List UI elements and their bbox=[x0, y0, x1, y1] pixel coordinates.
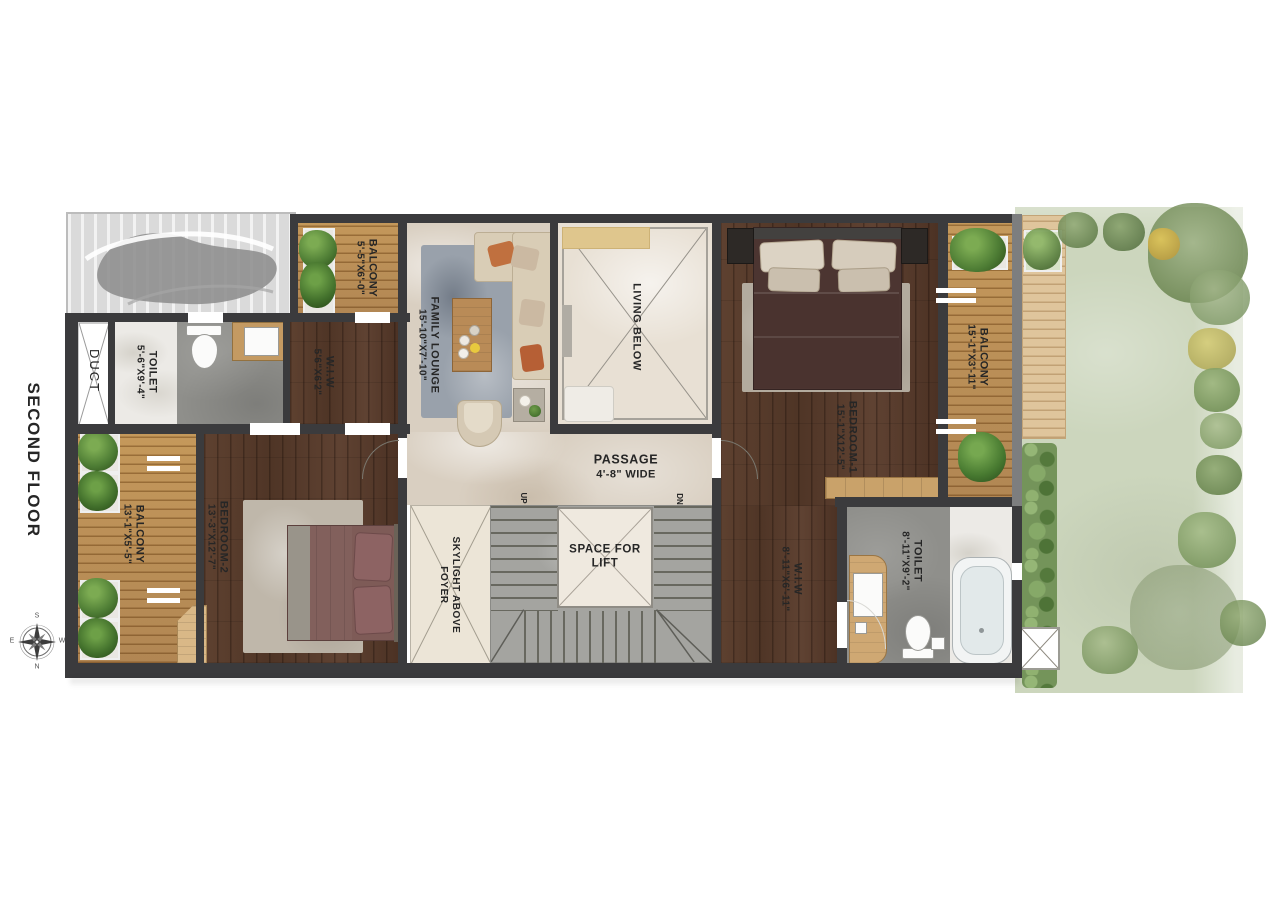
label-balcony-right: BALCONY 15'-1"X3'-11" bbox=[964, 324, 989, 390]
nightstand bbox=[727, 228, 754, 264]
bed2-pillow bbox=[353, 532, 393, 582]
toilet2-basin-icon bbox=[244, 327, 279, 356]
bush bbox=[1200, 413, 1242, 449]
label-toilet2: TOILET 5'-6"X9'-4" bbox=[133, 345, 158, 399]
bed2-pillow bbox=[353, 585, 393, 635]
bed1-blanket bbox=[754, 292, 899, 388]
wall bbox=[837, 507, 847, 602]
tree bbox=[1190, 270, 1250, 325]
planter-plant bbox=[958, 432, 1006, 482]
bed2-blanket bbox=[288, 526, 352, 640]
door-opening bbox=[398, 438, 407, 478]
bush bbox=[1082, 626, 1138, 674]
wall bbox=[1012, 506, 1022, 678]
label-balcony-left: BALCONY 13'-1"X5'-5" bbox=[120, 504, 145, 564]
planter-plant bbox=[78, 618, 118, 658]
label-passage: PASSAGE 4'-8" WIDE bbox=[594, 452, 658, 481]
garden-skylight bbox=[1020, 627, 1060, 670]
wall bbox=[65, 313, 78, 678]
planter-plant bbox=[78, 578, 118, 618]
planter-plant bbox=[950, 228, 1006, 272]
console-below bbox=[562, 305, 572, 357]
floor-plan: SECOND FLOOR DUCT TOILET 5'-6"X9'-4" BAL… bbox=[0, 0, 1285, 900]
bathtub bbox=[952, 557, 1012, 664]
label-living-below: LIVING BELOW bbox=[629, 283, 642, 371]
wall bbox=[1012, 214, 1022, 506]
toilet1-accessory bbox=[931, 637, 945, 650]
label-bedroom1: BEDROOM-1 15'-1"X12'-5" bbox=[833, 401, 858, 474]
label-duct: DUCT bbox=[86, 349, 102, 393]
wall bbox=[283, 313, 290, 434]
room-wiw2 bbox=[290, 322, 398, 424]
toilet2-vanity bbox=[232, 322, 285, 361]
label-wiw1: W.I.W 8'-11"X6'-11" bbox=[778, 546, 803, 611]
label-lift: SPACE FOR LIFT bbox=[569, 543, 641, 572]
door-opening bbox=[250, 423, 300, 435]
sofa-cushion bbox=[518, 298, 545, 327]
room-passage bbox=[406, 432, 712, 505]
sliding-door-icon bbox=[936, 288, 976, 303]
bush bbox=[1194, 368, 1240, 412]
bed1-pillow bbox=[768, 267, 821, 293]
side-table bbox=[513, 388, 545, 422]
sliding-door-icon bbox=[147, 588, 180, 603]
sliding-door-icon bbox=[147, 456, 180, 471]
compass-east: E bbox=[10, 638, 15, 647]
pergola-canopy bbox=[66, 212, 296, 320]
canopy-shape-icon bbox=[68, 214, 294, 318]
building-shadow bbox=[70, 678, 1020, 687]
bush bbox=[1196, 455, 1242, 495]
door-opening bbox=[355, 312, 390, 323]
wall bbox=[290, 214, 298, 317]
sofa-below bbox=[564, 386, 614, 422]
label-bedroom2: BEDROOM-2 13'-3"X12'-7" bbox=[204, 501, 229, 574]
wall bbox=[835, 497, 1012, 507]
label-stairs-up: UP bbox=[518, 492, 528, 503]
yellow-bush bbox=[1148, 228, 1180, 260]
door-opening bbox=[712, 438, 721, 478]
wall bbox=[837, 648, 847, 663]
sofa-cushion bbox=[519, 344, 544, 373]
label-toilet1: TOILET 8'-11"X9'-2" bbox=[898, 531, 923, 591]
dresser bbox=[825, 477, 942, 499]
garden-planter-plant bbox=[1023, 228, 1061, 270]
window-opening bbox=[1012, 563, 1022, 580]
cross-lines-icon bbox=[1022, 629, 1058, 668]
label-stairs-down: DN bbox=[674, 493, 684, 505]
tree bbox=[1103, 213, 1145, 251]
coffee-table bbox=[452, 298, 492, 372]
label-skylight-foyer: SKYLIGHT ABOVE FOYER bbox=[437, 537, 461, 634]
compass-south: S bbox=[35, 613, 40, 622]
label-family-lounge: FAMILY LOUNGE 15'-10"X7'-10" bbox=[415, 296, 440, 393]
wall bbox=[108, 313, 115, 434]
armchair bbox=[457, 400, 502, 447]
page-title: SECOND FLOOR bbox=[23, 383, 43, 538]
nightstand bbox=[901, 228, 928, 264]
door-opening bbox=[345, 423, 390, 435]
door-opening bbox=[188, 312, 223, 323]
yellow-bush bbox=[1188, 328, 1236, 370]
planter-plant bbox=[78, 471, 118, 511]
compass-west: W bbox=[59, 638, 66, 647]
wall bbox=[550, 424, 720, 434]
label-wiw2: W.I.W 5'6"X6'2" bbox=[310, 349, 335, 396]
compass-rose-icon: S N E W bbox=[8, 612, 66, 672]
planter-plant bbox=[300, 262, 336, 308]
compass-north: N bbox=[34, 664, 39, 673]
bed2 bbox=[287, 525, 403, 641]
tree bbox=[1058, 212, 1098, 248]
kitchen-counter-below bbox=[562, 227, 650, 249]
bush bbox=[1178, 512, 1236, 568]
label-balcony-top: BALCONY 5'-5"X6'-0" bbox=[353, 239, 378, 298]
bush bbox=[1220, 600, 1266, 646]
wall bbox=[65, 663, 1022, 678]
wall bbox=[550, 214, 558, 433]
wall bbox=[938, 214, 948, 506]
sliding-door-icon bbox=[936, 419, 976, 434]
planter-plant bbox=[78, 431, 118, 471]
wall bbox=[196, 424, 204, 663]
bed1-headboard bbox=[752, 228, 903, 239]
bed1 bbox=[753, 227, 902, 390]
bed1-pillow bbox=[838, 267, 891, 293]
